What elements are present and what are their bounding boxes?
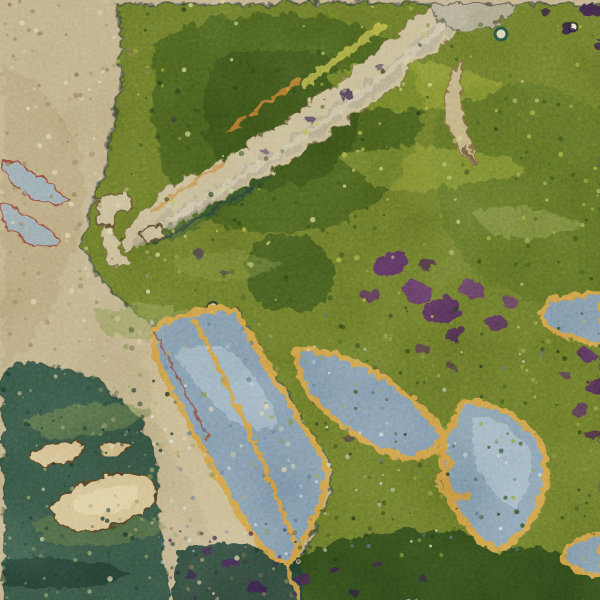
screenshot-root xyxy=(0,0,600,600)
textured-aerial-collage xyxy=(0,0,600,600)
grain-fine-overlay xyxy=(0,0,600,600)
